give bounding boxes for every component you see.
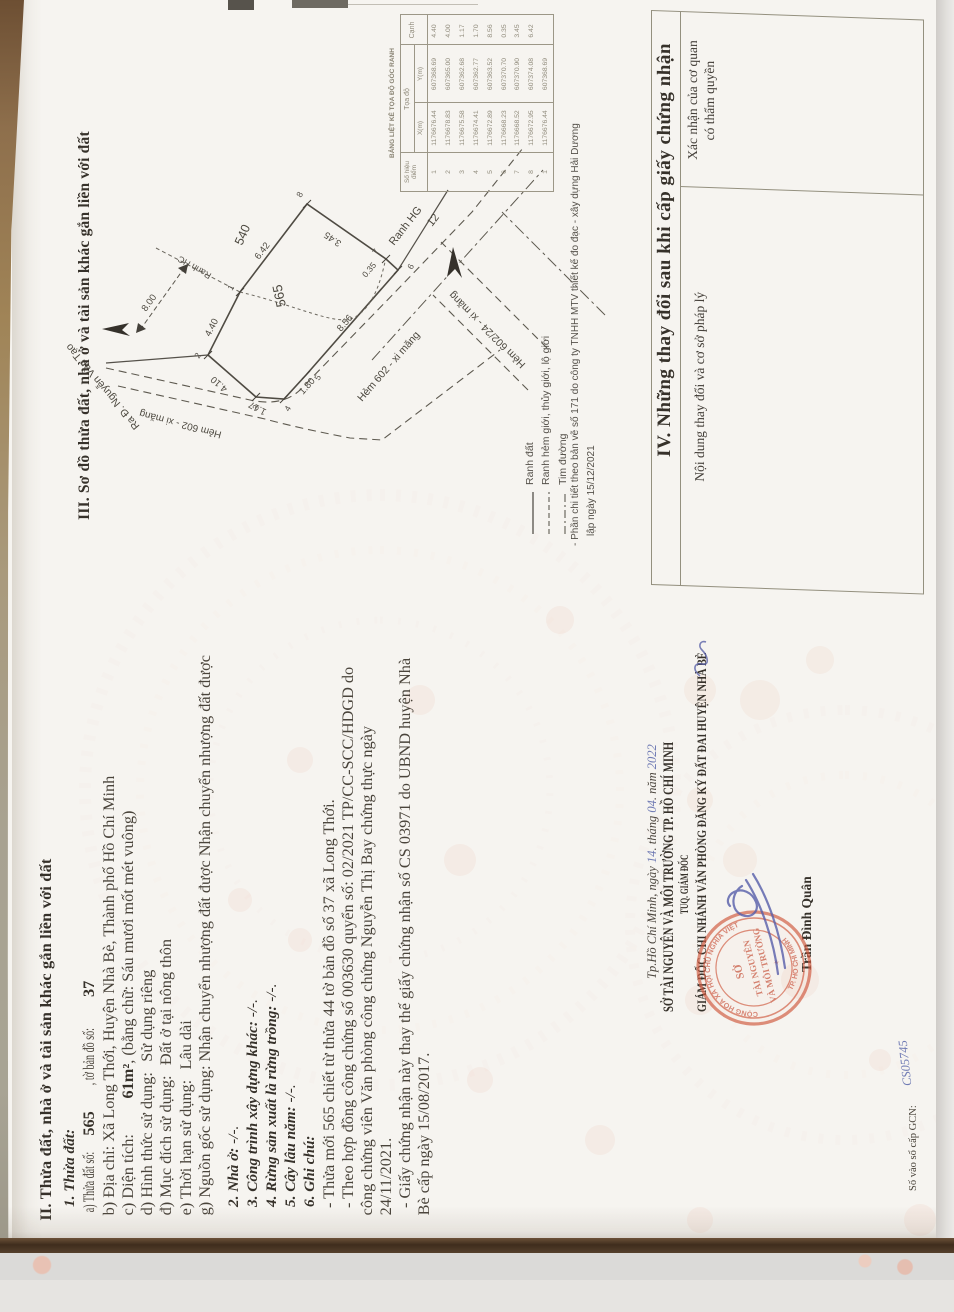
svg-text:Ra Đ. Nguyễn Văn Tạo: Ra Đ. Nguyễn Văn Tạo [63, 341, 143, 432]
svg-text:8.00: 8.00 [140, 292, 160, 313]
svg-text:1: 1 [225, 283, 236, 292]
svg-text:3.45: 3.45 [322, 229, 343, 249]
svg-text:6.42: 6.42 [253, 240, 273, 261]
svg-text:540: 540 [232, 222, 253, 247]
svg-text:2: 2 [192, 351, 203, 360]
svg-text:4.10: 4.10 [209, 374, 230, 394]
svg-text:8.56: 8.56 [335, 313, 355, 334]
svg-text:565: 565 [270, 283, 289, 308]
svg-text:4: 4 [282, 404, 293, 413]
svg-text:6: 6 [405, 262, 416, 271]
svg-text:12: 12 [425, 212, 442, 229]
svg-text:Hẻm 602 - xi măng: Hẻm 602 - xi măng [138, 407, 222, 439]
svg-text:8: 8 [294, 190, 305, 199]
svg-text:Hẻm 602/24 - xi măng: Hẻm 602/24 - xi măng [446, 289, 528, 371]
svg-text:0.35: 0.35 [360, 260, 378, 279]
svg-text:Hẻm 602 - xi măng: Hẻm 602 - xi măng [355, 329, 422, 404]
svg-text:Ranh HG: Ranh HG [387, 204, 425, 248]
svg-text:1.17: 1.17 [247, 399, 268, 417]
